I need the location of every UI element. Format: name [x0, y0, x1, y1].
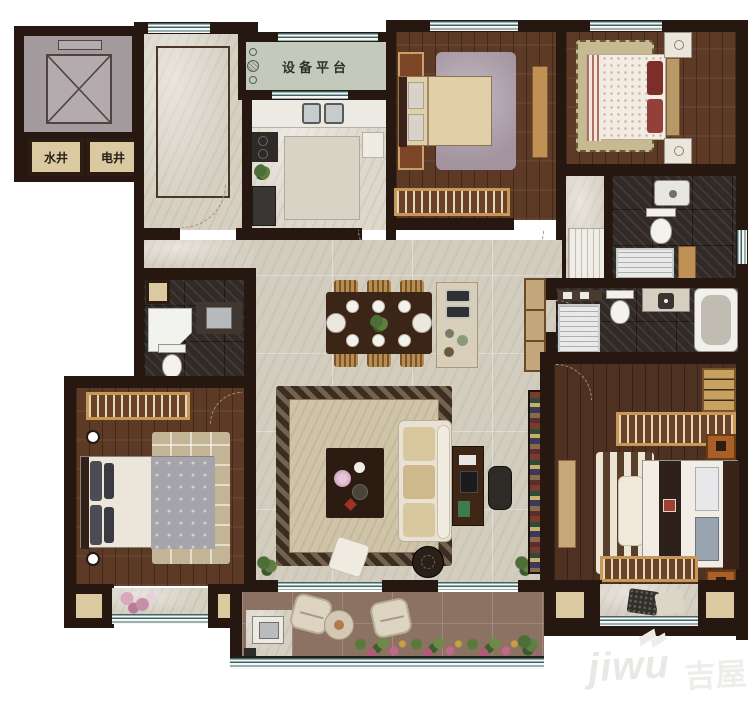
elevator-door-sill	[58, 40, 102, 50]
platform-kitchen-window	[272, 91, 348, 99]
dining-chair	[367, 352, 391, 367]
toiletry-icon	[580, 292, 589, 299]
west-outer-wall	[134, 22, 144, 240]
coffee-table	[326, 448, 384, 518]
chair-seam	[380, 615, 404, 622]
pillow	[408, 82, 424, 109]
sw-bay-window	[112, 614, 210, 624]
wall-lamp-icon	[86, 552, 100, 566]
watermark-cn: 吉屋	[683, 648, 747, 696]
laptop-icon	[460, 471, 478, 493]
bath-cabinet	[678, 246, 696, 280]
sofa-cushion	[403, 503, 435, 537]
kitchen-bottom-wall	[242, 228, 362, 240]
bedroom-se-top-wall	[540, 352, 748, 364]
bathroom-left-right-wall	[244, 268, 256, 388]
bath-ne-sink	[654, 180, 690, 206]
toilet-tank	[646, 208, 676, 217]
entry-corridor-floor	[144, 240, 254, 270]
bath-ne-window	[737, 230, 747, 264]
end-chair	[412, 313, 432, 333]
desk-pad-icon	[458, 501, 470, 517]
bed-se	[642, 460, 738, 568]
pillow	[90, 461, 102, 501]
console-table	[558, 460, 576, 548]
plate-icon	[372, 300, 385, 313]
se-bay-window	[600, 616, 698, 626]
master-bath-left-wall-a	[546, 278, 556, 300]
electric-shaft-label: 电井	[101, 149, 125, 166]
bathtub	[694, 288, 738, 352]
headboard	[399, 77, 407, 147]
balcony-door-glass	[278, 582, 382, 590]
master-bath-top-wall	[546, 278, 748, 288]
shower-area	[616, 248, 674, 280]
pillar-inset	[556, 592, 584, 618]
appliance-icon	[445, 289, 471, 303]
bedroom-se-left-wall	[540, 352, 554, 590]
entry-window	[148, 23, 210, 33]
headboard	[81, 457, 89, 549]
shelf-divider	[526, 309, 544, 311]
fridge-icon	[252, 186, 276, 226]
sill-flowers	[116, 590, 160, 614]
pillow	[104, 463, 114, 499]
pipe-shaft	[146, 280, 170, 304]
drain-icon	[669, 190, 677, 198]
living-south-wall-a	[244, 580, 278, 592]
equipment-platform-label: 设备平台	[282, 57, 350, 76]
toilet-bowl	[610, 300, 630, 324]
entry-floor-inlay	[156, 46, 230, 198]
bedroom-ne-bottom-wall	[556, 164, 748, 176]
bedroom-north-window	[430, 21, 518, 31]
platform-window	[278, 33, 378, 41]
flowers-icon	[334, 470, 351, 487]
bath-ne-left-wall	[604, 176, 612, 284]
nightstand	[706, 434, 736, 460]
sill-cushion	[626, 588, 659, 616]
lamp-icon	[674, 40, 684, 50]
bathtub-basin	[701, 295, 731, 345]
toilet-bowl	[650, 218, 672, 244]
flower-pot-icon	[334, 620, 344, 630]
tray-icon	[352, 484, 368, 500]
plant-icon	[256, 554, 278, 576]
equipment-platform-label-box: 设备平台	[266, 56, 366, 76]
floor-pouf	[412, 546, 444, 578]
west-outer-wall-lower	[134, 240, 144, 388]
plant-icon	[516, 632, 540, 656]
pillar-inset	[76, 594, 102, 618]
kitchen-plant-icon	[254, 164, 270, 180]
desk	[452, 446, 484, 526]
sofa-cushion	[403, 427, 435, 461]
wall-lamp-icon	[86, 430, 100, 444]
laundry-sink	[252, 616, 284, 644]
office-chair	[488, 466, 512, 510]
water-shaft-label: 水井	[44, 149, 68, 166]
drain-icon	[247, 60, 259, 72]
bowl-icon	[444, 347, 454, 357]
pillow	[695, 467, 719, 511]
drain-icon	[664, 299, 668, 303]
kitchen-island	[284, 136, 360, 220]
bedroom-sw-right-wall	[244, 388, 256, 588]
sideboard	[436, 282, 478, 368]
bed-ne	[586, 54, 666, 140]
bed-bench	[618, 476, 644, 546]
headboard	[666, 58, 680, 136]
pillow	[90, 505, 102, 545]
pouf-stitch	[421, 555, 435, 569]
bed-sw	[80, 456, 214, 548]
plate-icon	[346, 300, 359, 313]
lamp-icon	[716, 441, 726, 451]
bed-north	[398, 76, 492, 146]
plate-icon	[398, 300, 411, 313]
headboard	[723, 461, 739, 569]
master-shower	[558, 304, 600, 354]
blanket-fold	[427, 77, 429, 147]
vanity-counter	[196, 302, 242, 334]
sofa-cushion	[403, 465, 435, 499]
toiletry-icon	[563, 292, 572, 299]
wardrobe-north	[394, 188, 510, 216]
cup-icon	[354, 462, 365, 473]
nightstand	[664, 138, 692, 164]
closet-strip	[600, 556, 698, 582]
bowl-icon	[457, 335, 468, 346]
sofa	[398, 420, 452, 542]
vent-icon	[249, 76, 257, 84]
shelf-divider	[526, 340, 544, 342]
bedroom-sw-top-wall	[64, 376, 256, 388]
papers-icon	[459, 455, 476, 465]
tall-cabinet	[532, 66, 548, 158]
pillow	[104, 507, 114, 543]
entry-bottom-wall-a	[134, 228, 180, 240]
balcony-door-glass	[438, 582, 518, 590]
basin	[259, 622, 279, 639]
toilet-tank	[158, 344, 186, 353]
watermark-latin: jiwu	[587, 642, 671, 691]
toilet-tank	[606, 290, 634, 299]
pillow	[695, 517, 719, 561]
chair-seam	[300, 611, 324, 619]
ornament-icon	[344, 498, 357, 511]
plate-icon	[346, 334, 359, 347]
pillow	[647, 61, 663, 95]
bed-runner	[587, 55, 601, 141]
bed-runner	[659, 461, 681, 569]
bedroom-north-bottom-wall	[386, 218, 514, 230]
wardrobe-sw	[86, 392, 190, 420]
elevator-car-icon	[46, 54, 112, 124]
pillow	[408, 114, 424, 141]
pillar-inset	[706, 592, 734, 618]
platform-left-wall	[238, 32, 246, 98]
plate-icon	[398, 334, 411, 347]
bath-shelf	[558, 290, 602, 301]
kitchen-sink-basin	[302, 103, 321, 124]
master-vanity	[642, 288, 690, 312]
toilet-bowl	[162, 354, 182, 378]
stove-icon	[252, 132, 278, 162]
bowl-icon	[445, 329, 454, 338]
sofa-back	[437, 425, 450, 539]
dining-chair	[400, 352, 424, 367]
centerpiece-icon	[370, 314, 388, 332]
burner-icon	[258, 149, 268, 159]
balcony-table	[324, 610, 354, 640]
bedroom-ne-window	[590, 21, 662, 31]
kitchen-sink-basin	[324, 103, 344, 124]
water-shaft-room: 水井	[28, 138, 84, 176]
vent-icon	[249, 48, 257, 56]
balcony-railing	[230, 656, 544, 669]
living-south-wall-b	[382, 580, 438, 592]
basin	[206, 307, 232, 329]
vanity-basin	[658, 293, 674, 309]
bathroom-left-top-wall	[134, 268, 256, 280]
linen-cabinet	[568, 228, 606, 280]
lamp-icon	[674, 146, 684, 156]
appliance-icon	[445, 305, 471, 319]
duvet	[151, 457, 215, 549]
dining-chair	[334, 352, 358, 367]
kitchen-cart	[362, 132, 384, 158]
burner-icon	[258, 136, 268, 146]
floor-plan: 水井 电井 设备平台	[0, 0, 756, 703]
pillow	[647, 99, 663, 133]
end-chair	[326, 313, 346, 333]
plant-shelf	[702, 368, 736, 412]
nightstand	[664, 32, 692, 58]
accent-pillow	[663, 499, 676, 512]
living-south-wall-c	[518, 580, 548, 592]
electric-shaft-room: 电井	[86, 138, 140, 176]
plate-icon	[372, 334, 385, 347]
watermark: jiwu 吉屋	[586, 628, 756, 703]
